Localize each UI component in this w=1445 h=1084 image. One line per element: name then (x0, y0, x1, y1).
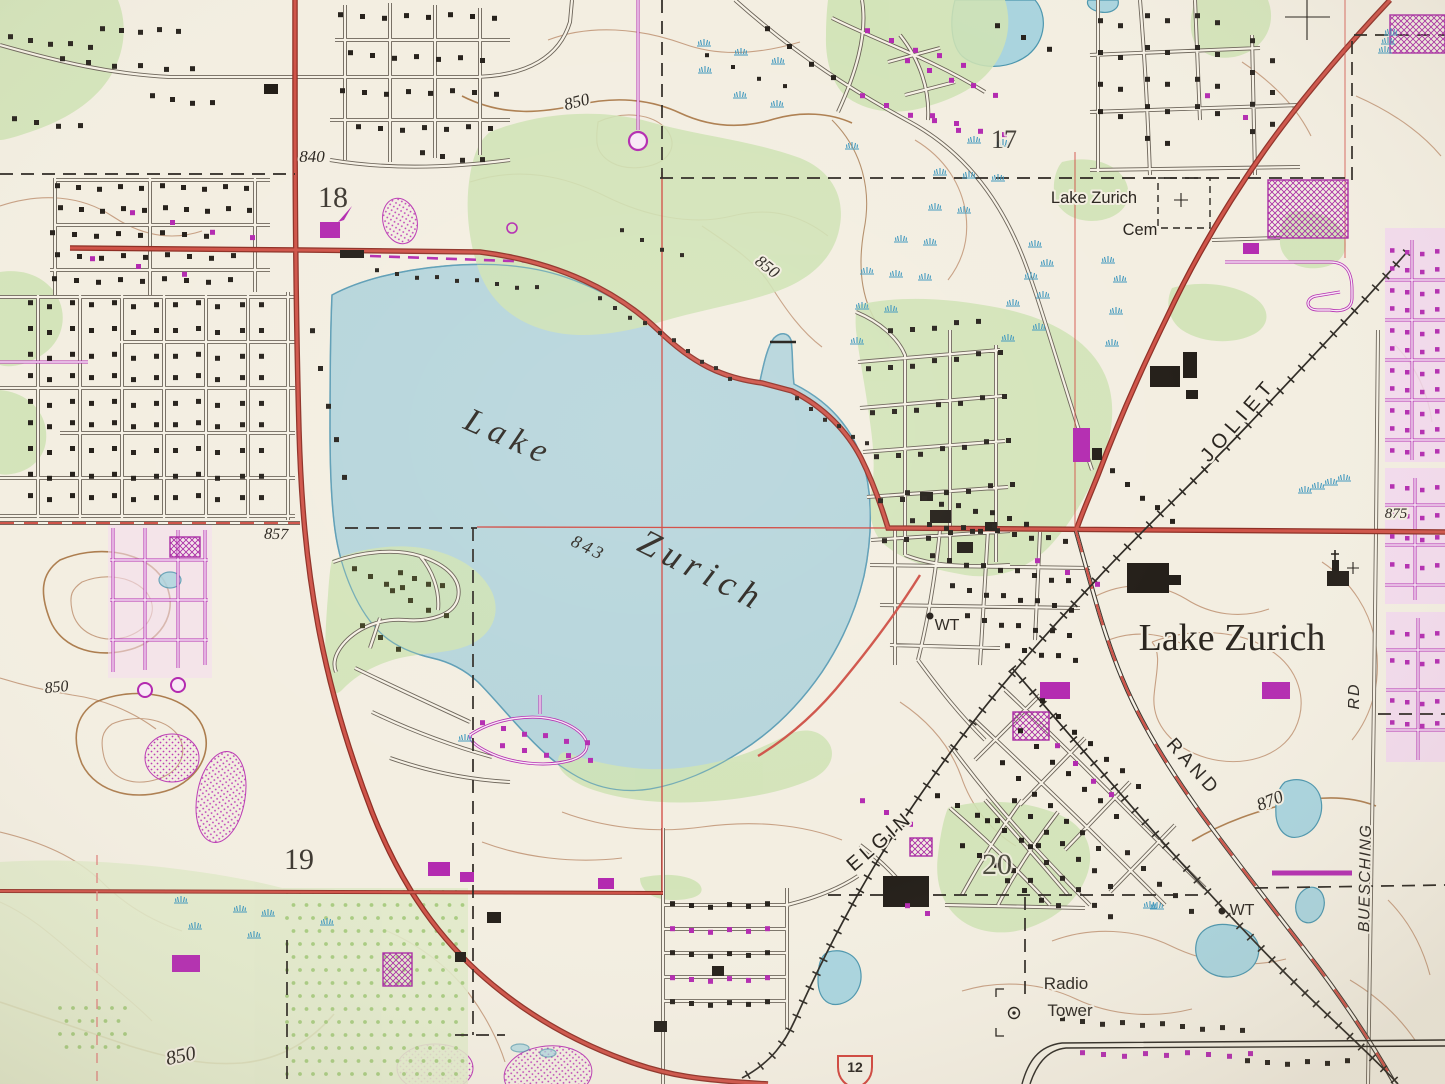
road-label-rd: RD (1346, 682, 1363, 709)
elevation-label-875: 875 (1385, 506, 1408, 522)
route-12-shield-label: 12 (847, 1059, 863, 1075)
topographic-map: Lake Zurich 843 Lake Zurich Lake Zurich … (0, 0, 1445, 1084)
cemetery-label-line1: Lake Zurich (1051, 189, 1137, 207)
map-canvas: Lake Zurich 843 Lake Zurich Lake Zurich … (0, 0, 1445, 1084)
elevation-label-840: 840 (299, 147, 325, 166)
radio-tower-label-line2: Tower (1047, 1001, 1093, 1020)
town-name-label: Lake Zurich (1139, 617, 1326, 659)
section-number-18: 18 (318, 181, 348, 214)
cemetery-label-line2: Cem (1123, 221, 1158, 239)
section-number-17: 17 (991, 125, 1017, 154)
contour-label-850-west: 850 (44, 678, 70, 697)
water-tank-label-1: WT (935, 617, 960, 634)
section-number-20: 20 (982, 848, 1012, 881)
radio-tower-label-line1: Radio (1044, 974, 1088, 993)
elevation-label-857: 857 (264, 526, 290, 544)
water-tank-label-2: WT (1230, 902, 1255, 919)
road-label-buesching: BUESCHING (1356, 823, 1375, 932)
section-number-19: 19 (284, 843, 314, 876)
